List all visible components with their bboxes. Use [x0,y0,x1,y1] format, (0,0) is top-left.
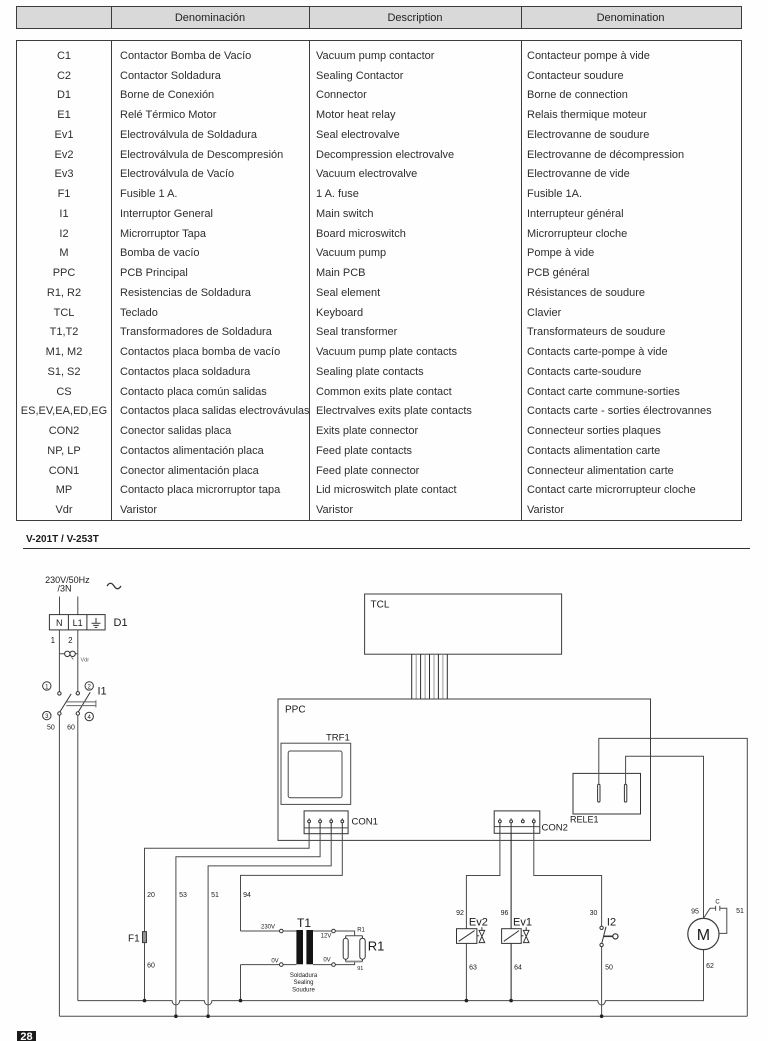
svg-text:92: 92 [456,910,464,917]
svg-text:50: 50 [605,965,613,972]
svg-text:Vdr: Vdr [81,658,90,664]
svg-text:95: 95 [691,909,699,916]
svg-text:M: M [697,927,710,944]
svg-text:60: 60 [147,963,155,970]
svg-text:PPC: PPC [285,705,306,716]
svg-text:0V: 0V [271,959,278,965]
svg-text:/3N: /3N [57,584,71,594]
svg-text:TRF1: TRF1 [326,733,350,744]
svg-text:C: C [715,900,720,906]
svg-text:L1: L1 [73,618,83,628]
svg-text:51: 51 [211,892,219,899]
svg-text:RELE1: RELE1 [570,815,599,825]
svg-text:50: 50 [47,725,55,732]
svg-text:2: 2 [68,636,73,645]
svg-text:51: 51 [736,908,744,915]
svg-text:62: 62 [706,963,714,970]
svg-text:CON1: CON1 [352,817,378,828]
svg-text:63: 63 [469,965,477,972]
svg-text:20: 20 [147,892,155,899]
svg-text:I2: I2 [607,917,616,929]
svg-text:Ev1: Ev1 [513,917,532,929]
svg-text:0V: 0V [323,958,330,964]
svg-text:53: 53 [179,892,187,899]
svg-text:94: 94 [243,892,251,899]
svg-text:T1: T1 [297,916,311,930]
svg-text:CON2: CON2 [542,823,568,834]
svg-text:D1: D1 [114,617,128,629]
svg-text:F1: F1 [128,934,140,945]
svg-text:R1: R1 [357,928,365,934]
svg-text:60: 60 [67,725,75,732]
svg-text:96: 96 [501,910,509,917]
svg-text:I1: I1 [98,686,107,698]
svg-text:TCL: TCL [371,600,390,611]
svg-text:Soldadura: Soldadura [290,973,318,979]
svg-text:R1: R1 [368,939,385,954]
svg-text:Sealing: Sealing [293,980,313,986]
svg-text:30: 30 [590,910,598,917]
svg-text:N: N [56,618,63,628]
svg-text:91: 91 [357,966,363,972]
svg-text:230V: 230V [261,925,275,931]
svg-text:1: 1 [51,636,56,645]
svg-text:Soudure: Soudure [292,987,315,993]
svg-text:Ev2: Ev2 [469,917,488,929]
svg-text:12V: 12V [321,934,332,940]
svg-text:64: 64 [514,965,522,972]
